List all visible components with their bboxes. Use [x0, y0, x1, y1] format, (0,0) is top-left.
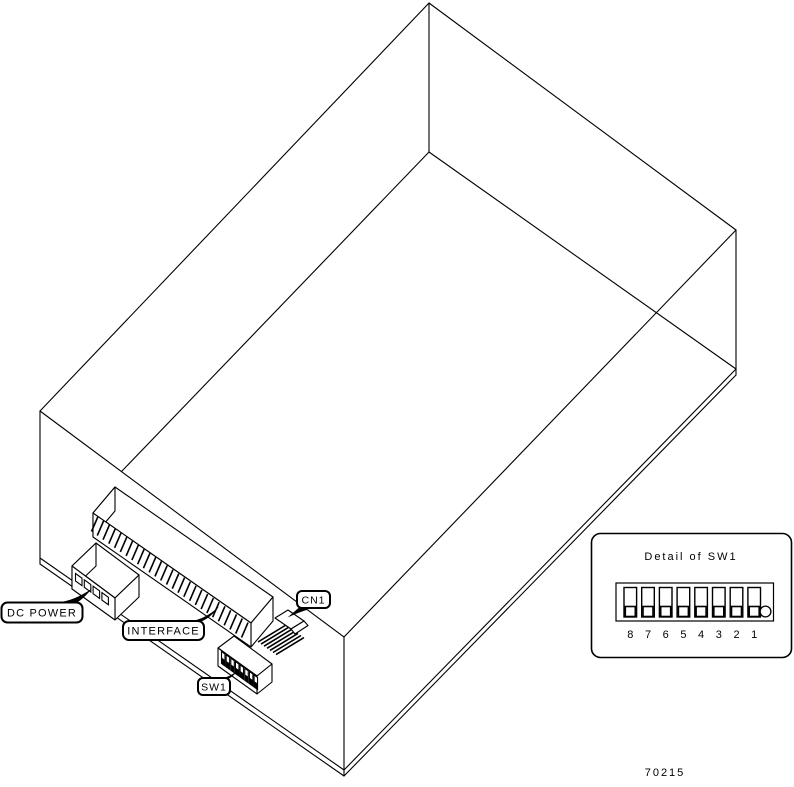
top-left-edge — [40, 3, 429, 411]
figure-canvas: DC POWER INTERFACE CN1 SW1 Detail of SW1… — [0, 0, 794, 787]
detail-panel-title: Detail of SW1 — [644, 551, 737, 563]
dip-switch-knob — [625, 607, 635, 617]
top-right-edge — [429, 3, 736, 230]
dip-switch-number: 4 — [698, 629, 704, 641]
dip-switch-number: 3 — [716, 629, 722, 641]
part-number: 70215 — [645, 767, 686, 779]
cn1-label: CN1 — [301, 595, 325, 607]
dip-switch-knob — [643, 607, 653, 617]
dip-switch-number: 8 — [627, 629, 633, 641]
dip-switch-number: 7 — [645, 629, 651, 641]
dip-switch-number: 5 — [680, 629, 686, 641]
callout-cn1: CN1 — [288, 591, 331, 618]
interface-label: INTERFACE — [127, 626, 200, 638]
dip-switch-knob — [696, 607, 706, 617]
dc-power-label: DC POWER — [7, 608, 77, 620]
device-enclosure-wireframe — [40, 3, 736, 776]
dip-switch-number: 2 — [733, 629, 739, 641]
rear-bottom-right-edge — [429, 152, 736, 369]
dip-switch-number: 6 — [663, 629, 669, 641]
dip-switch-index-circle — [760, 606, 771, 617]
dip-switch-knob — [732, 607, 742, 617]
detail-of-sw1-panel: Detail of SW1 87654321 — [592, 534, 792, 658]
dip-switch-knob — [661, 607, 671, 617]
dip-switch-knob — [678, 607, 688, 617]
dip-switch-number: 1 — [751, 629, 757, 641]
rear-bottom-left-edge — [122, 152, 429, 471]
dip-switch-knob — [714, 607, 724, 617]
dip-switch-knob — [749, 607, 759, 617]
sw1-label: SW1 — [201, 682, 227, 694]
